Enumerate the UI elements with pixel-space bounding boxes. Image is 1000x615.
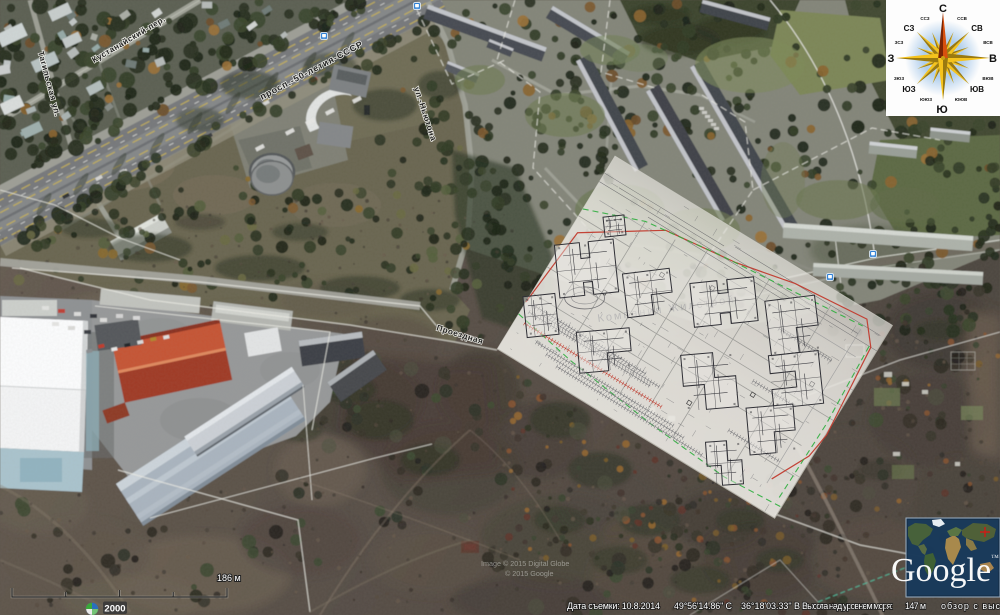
svg-text:ЮЮЗ: ЮЮЗ bbox=[920, 97, 932, 102]
svg-text:ССЗ: ССЗ bbox=[920, 16, 929, 21]
svg-text:Image © 2015 Digital Globe: Image © 2015 Digital Globe bbox=[481, 559, 569, 568]
svg-text:СЗ: СЗ bbox=[904, 24, 915, 33]
svg-text:ЮЗ: ЮЗ bbox=[902, 85, 915, 94]
svg-text:186 м: 186 м bbox=[217, 573, 241, 583]
svg-text:Google: Google bbox=[891, 552, 991, 589]
svg-text:© 2015 Google: © 2015 Google bbox=[505, 569, 553, 578]
svg-text:ВСВ: ВСВ bbox=[983, 40, 993, 45]
svg-text:ЮЮВ: ЮЮВ bbox=[955, 97, 968, 102]
svg-text:ВЮВ: ВЮВ bbox=[982, 76, 994, 81]
svg-text:ЗЮЗ: ЗЮЗ bbox=[894, 76, 904, 81]
svg-text:С: С bbox=[939, 3, 947, 15]
svg-text:ССВ: ССВ bbox=[957, 16, 967, 21]
svg-text:В: В bbox=[989, 53, 997, 65]
svg-text:2000: 2000 bbox=[104, 604, 125, 615]
svg-text:147 м: 147 м bbox=[905, 601, 926, 611]
svg-text:Высота над уровнем моря:: Высота над уровнем моря: bbox=[802, 601, 893, 611]
svg-text:Ю: Ю bbox=[936, 104, 947, 116]
svg-text:ЮВ: ЮВ bbox=[970, 85, 984, 94]
svg-text:обзор с выс: обзор с выс bbox=[941, 601, 1000, 611]
svg-text:З: З bbox=[888, 53, 895, 65]
svg-text:СВ: СВ bbox=[971, 24, 983, 33]
svg-text:36°18'03.33" В: 36°18'03.33" В bbox=[741, 601, 800, 611]
svg-text:™: ™ bbox=[991, 553, 999, 562]
svg-text:49°56'14.86" С: 49°56'14.86" С bbox=[674, 601, 733, 611]
svg-text:ЗСЗ: ЗСЗ bbox=[895, 40, 904, 45]
svg-text:Дата съемки: 10.8.2014: Дата съемки: 10.8.2014 bbox=[567, 601, 660, 611]
